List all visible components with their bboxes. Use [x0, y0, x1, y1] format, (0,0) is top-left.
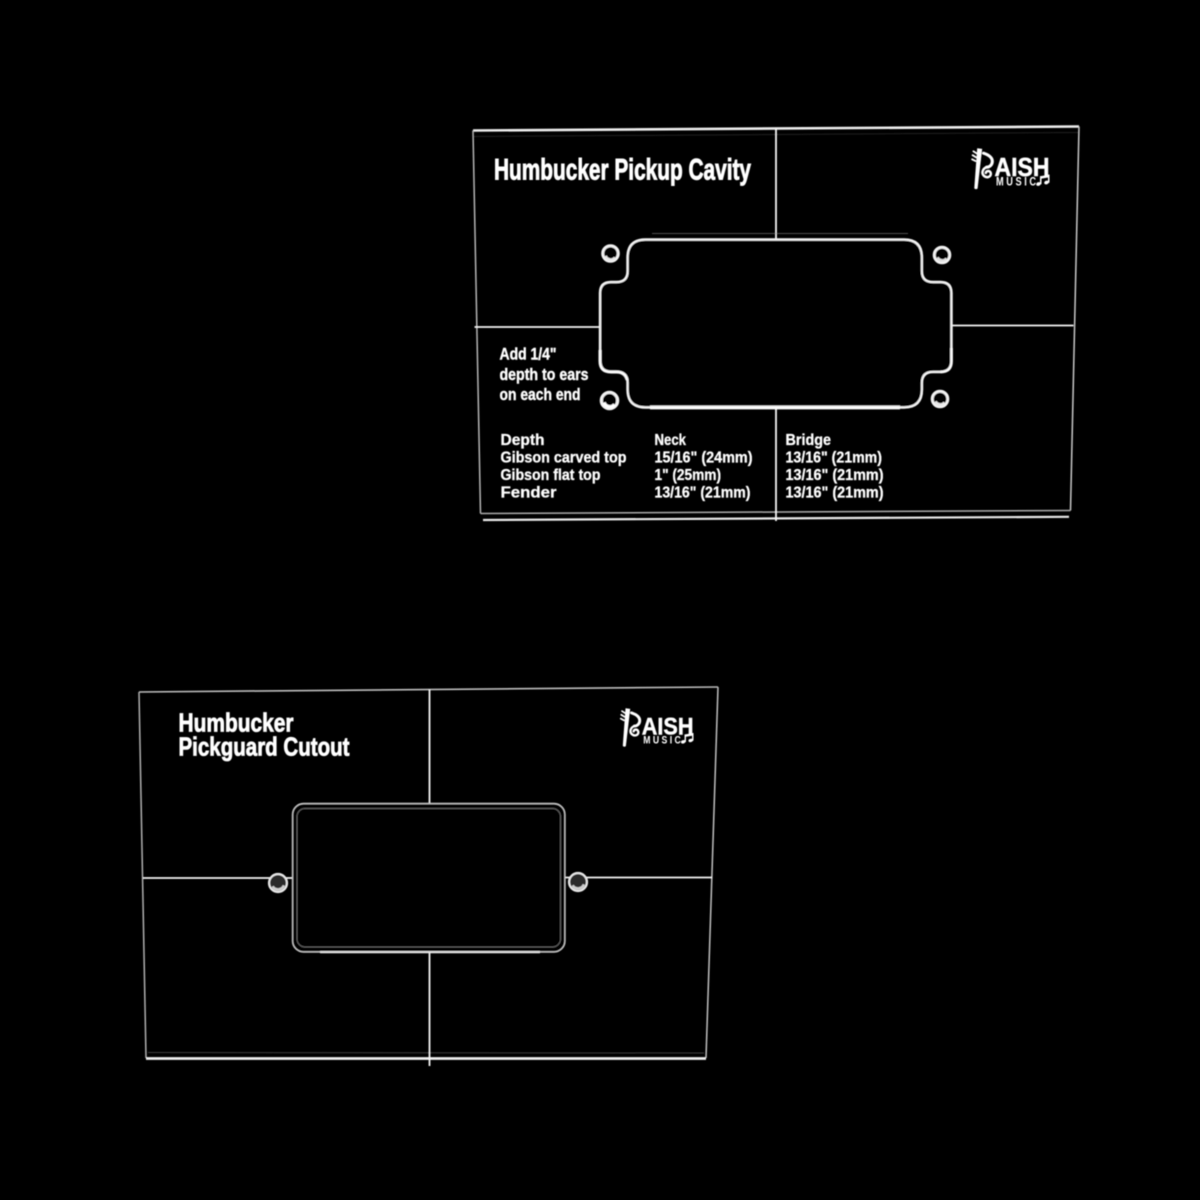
svg-text:depth to ears: depth to ears [500, 365, 589, 384]
svg-text:13/16" (21mm): 13/16" (21mm) [786, 485, 884, 502]
svg-text:Gibson carved top: Gibson carved top [501, 450, 627, 467]
svg-text:15/16" (24mm): 15/16" (24mm) [655, 450, 753, 467]
svg-text:Depth: Depth [501, 432, 545, 449]
svg-text:Gibson flat top: Gibson flat top [501, 467, 601, 484]
svg-text:Bridge: Bridge [786, 432, 832, 449]
svg-text:Neck: Neck [655, 432, 687, 449]
svg-text:13/16" (21mm): 13/16" (21mm) [786, 450, 883, 467]
svg-text:13/16" (21mm): 13/16" (21mm) [786, 467, 884, 484]
svg-text:13/16" (21mm): 13/16" (21mm) [655, 485, 751, 502]
svg-text:1" (25mm): 1" (25mm) [655, 467, 722, 484]
svg-text:Add 1/4": Add 1/4" [500, 345, 557, 364]
svg-text:Fender: Fender [501, 485, 557, 502]
svg-text:Pickguard Cutout: Pickguard Cutout [179, 732, 350, 762]
svg-text:on each end: on each end [500, 385, 581, 404]
svg-text:Humbucker Pickup Cavity: Humbucker Pickup Cavity [494, 154, 751, 187]
